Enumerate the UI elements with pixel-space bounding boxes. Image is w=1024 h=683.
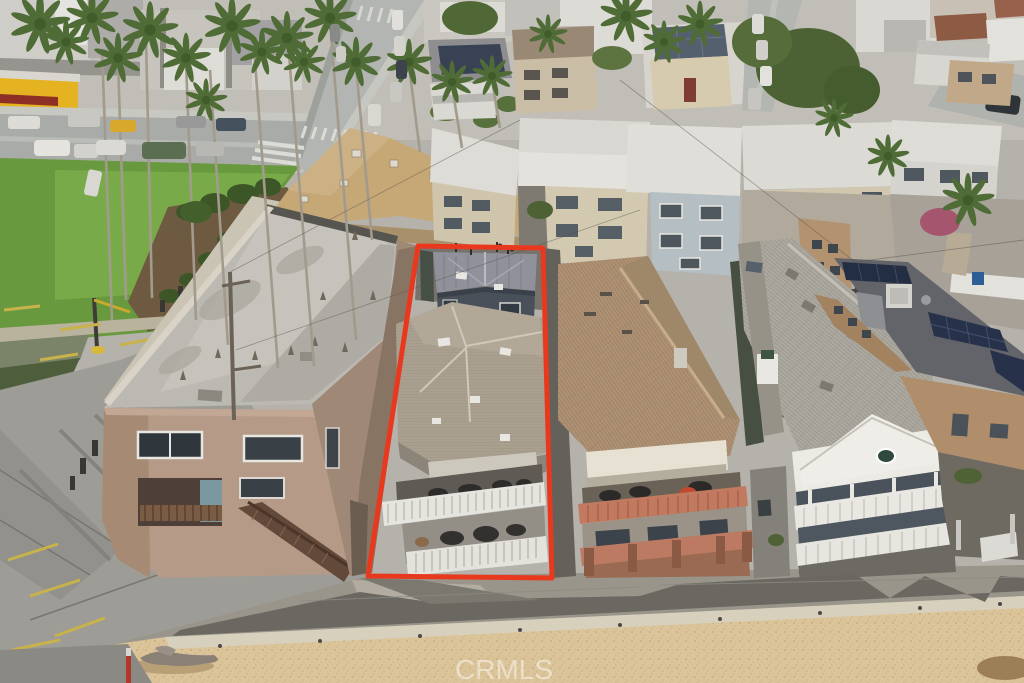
svg-text:CRMLS: CRMLS [455, 654, 553, 683]
